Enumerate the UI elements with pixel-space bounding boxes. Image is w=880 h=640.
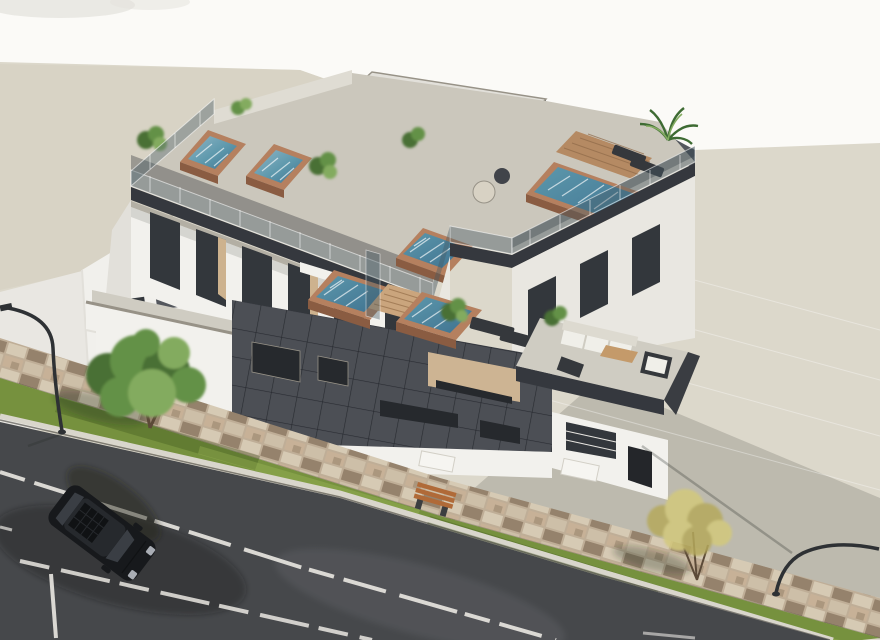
roof-pouf-light xyxy=(473,181,495,203)
pool-glass-divider xyxy=(366,250,380,320)
roof-pouf-dark xyxy=(494,168,510,184)
render-canvas xyxy=(0,0,880,640)
architectural-render xyxy=(0,0,880,640)
lamp-base xyxy=(772,592,780,597)
lamp-base xyxy=(58,430,66,435)
